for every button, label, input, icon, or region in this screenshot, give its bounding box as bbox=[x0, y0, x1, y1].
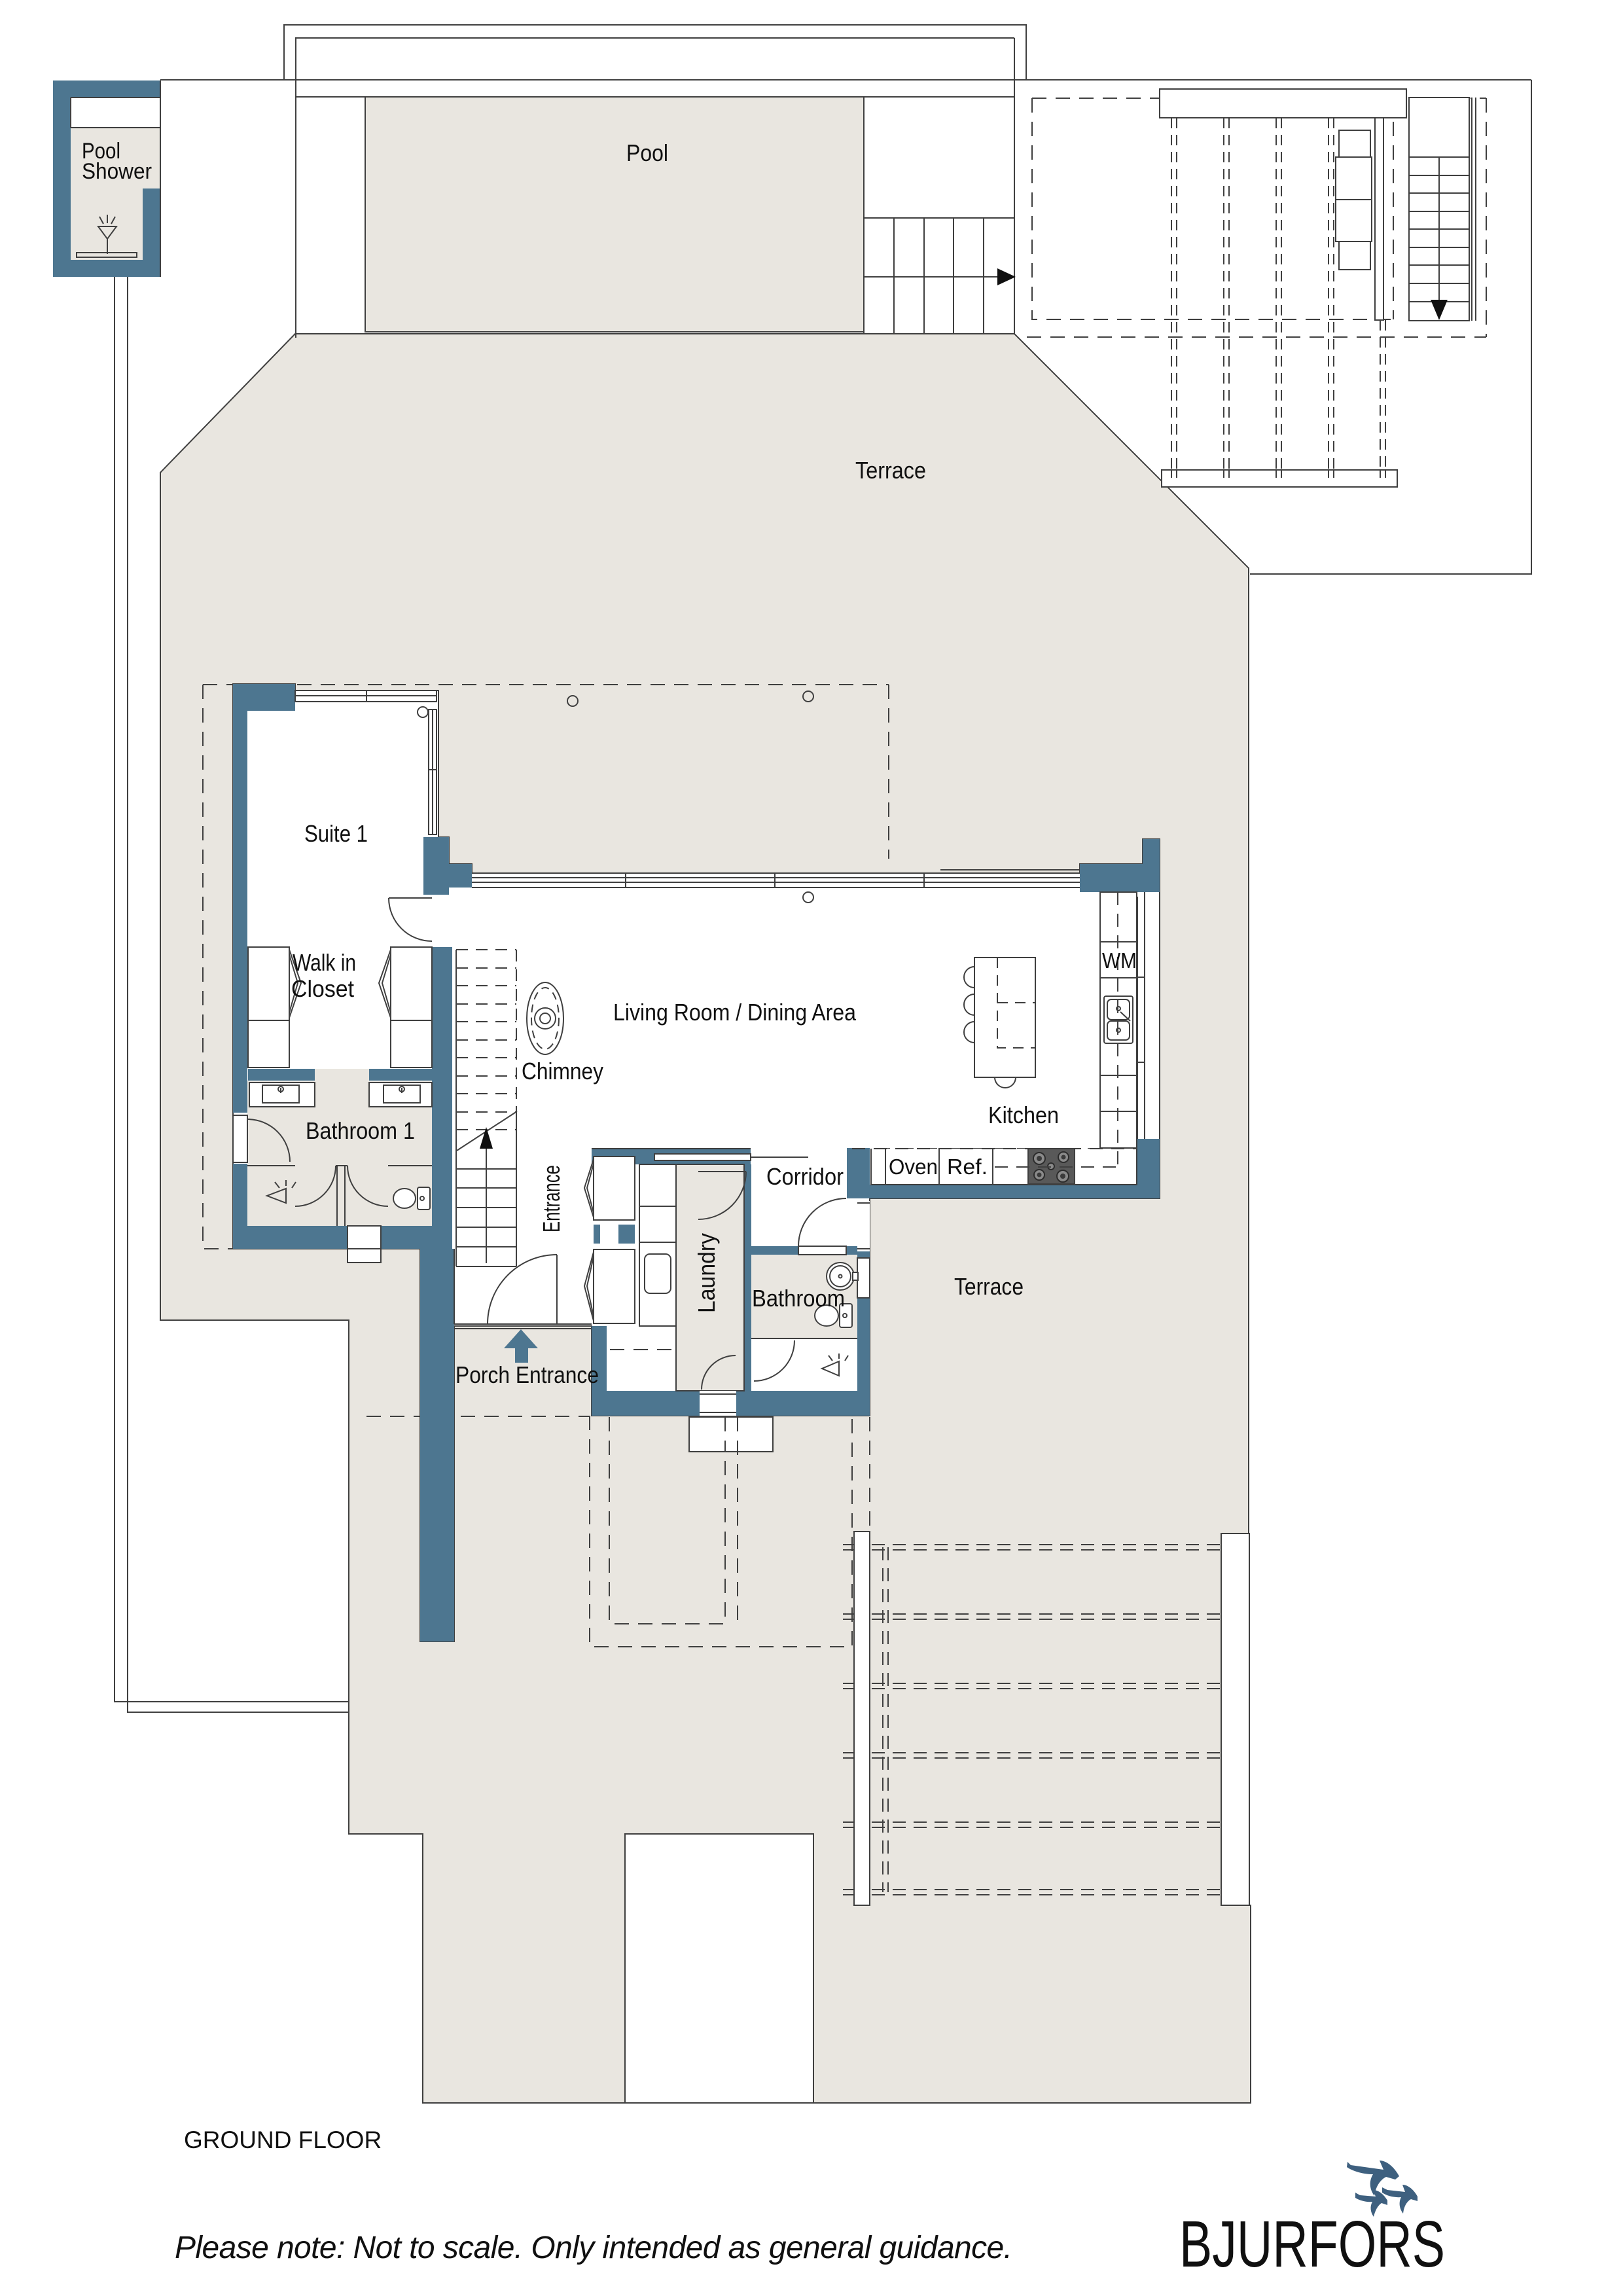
svg-text:Entrance: Entrance bbox=[538, 1165, 565, 1232]
svg-text:Terrace: Terrace bbox=[954, 1273, 1024, 1300]
svg-text:Ref.: Ref. bbox=[947, 1155, 988, 1179]
svg-text:Chimney: Chimney bbox=[522, 1058, 603, 1085]
svg-text:Please note: Not to scale. Onl: Please note: Not to scale. Only intended… bbox=[175, 2231, 1012, 2265]
svg-text:Oven: Oven bbox=[889, 1155, 938, 1179]
svg-text:Porch Entrance: Porch Entrance bbox=[455, 1361, 599, 1388]
svg-text:Kitchen: Kitchen bbox=[988, 1102, 1059, 1128]
svg-text:Terrace: Terrace bbox=[855, 457, 926, 484]
svg-text:GROUND FLOOR: GROUND FLOOR bbox=[184, 2126, 382, 2153]
svg-text:WM: WM bbox=[1102, 948, 1137, 973]
svg-text:Living Room / Dining Area: Living Room / Dining Area bbox=[613, 999, 857, 1026]
svg-text:BJURFORS: BJURFORS bbox=[1179, 2208, 1445, 2281]
svg-text:Pool: Pool bbox=[626, 139, 668, 166]
svg-text:Closet: Closet bbox=[291, 975, 354, 1002]
svg-text:Bathroom 1: Bathroom 1 bbox=[306, 1117, 415, 1144]
svg-text:Suite 1: Suite 1 bbox=[304, 820, 368, 847]
svg-text:Laundry: Laundry bbox=[693, 1233, 720, 1313]
svg-text:Walk in: Walk in bbox=[293, 949, 356, 976]
svg-text:Shower: Shower bbox=[82, 159, 152, 184]
svg-text:Bathroom: Bathroom bbox=[752, 1285, 845, 1312]
svg-text:Corridor: Corridor bbox=[766, 1163, 844, 1190]
